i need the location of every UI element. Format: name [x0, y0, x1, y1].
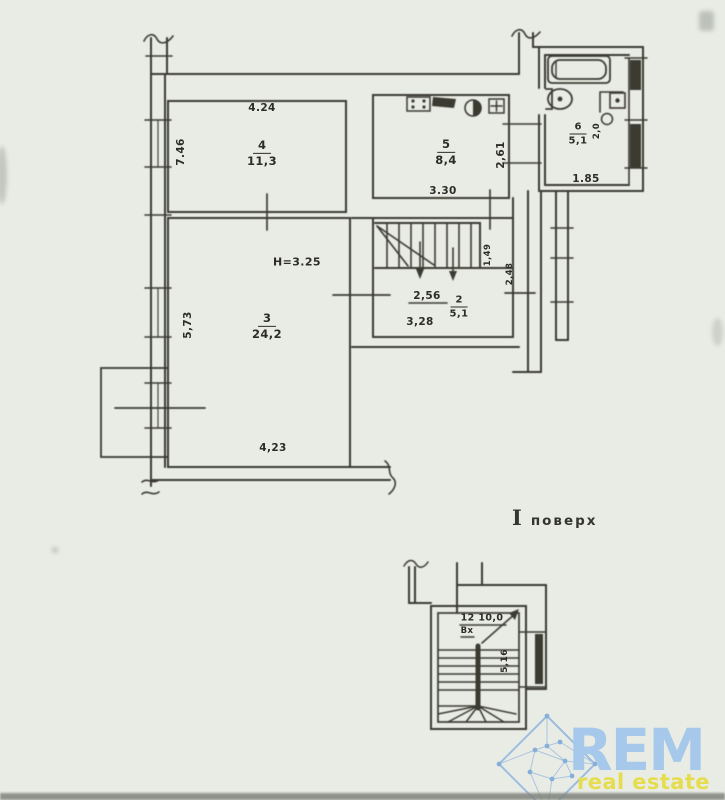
stairwell-label: 12 10,0	[461, 613, 504, 624]
toilet-icon	[610, 93, 625, 108]
water-heater-icon	[602, 114, 613, 125]
dim-stair-right: 1,49	[483, 244, 493, 267]
dim-hall-right: 2,48	[505, 263, 515, 286]
kitchen-sink-icon	[432, 97, 456, 108]
room3-number: 3	[258, 312, 276, 327]
room4-area: 11,3	[247, 154, 277, 168]
dim-room6-fixture: 2,0	[592, 123, 602, 139]
dim-room3-left: 5,73	[182, 311, 194, 339]
floor-plan-drawing	[0, 0, 725, 800]
meter-box-icon	[489, 99, 504, 113]
room6-number: 6	[570, 122, 587, 135]
note-room3-height: H=3.25	[273, 256, 321, 269]
scan-artifact	[699, 11, 714, 31]
room5-walls	[373, 95, 541, 229]
bathtub-icon	[548, 56, 610, 83]
room-label-6: 6 5,1	[569, 122, 588, 147]
dim-room2-bottom: 3,28	[406, 316, 434, 328]
room6-area: 5,1	[569, 135, 588, 147]
boiler-icon	[465, 100, 481, 116]
dim-room5-bottom: 3.30	[429, 185, 457, 197]
room-label-5: 5 8,4	[435, 138, 457, 166]
stairwell-plan	[404, 560, 546, 729]
room3-area: 24,2	[252, 327, 282, 341]
right-corridor-walls	[513, 191, 573, 372]
scan-edge-shadow	[0, 793, 725, 800]
scanned-floor-plan-page: 4.24 7.46 4 11,3 5 8,4 3.30 2,61 6 5,1 1…	[0, 0, 725, 800]
floor-caption: І поверх	[512, 505, 598, 530]
dim-room5-right: 2,61	[495, 141, 507, 169]
stairwell-entry-label: Вх	[461, 626, 474, 636]
floor-caption-text: поверх	[531, 513, 598, 529]
scan-artifact	[52, 547, 58, 553]
dim-room4-top: 4.24	[248, 102, 276, 114]
room4-number: 4	[253, 139, 271, 154]
dim-room2-top: 2,56	[413, 290, 441, 302]
room-label-2: 2 5,1	[450, 295, 469, 320]
floor-caption-numeral: І	[512, 505, 522, 530]
bathroom-walls	[533, 47, 647, 191]
scan-artifact	[712, 318, 723, 346]
room2-number: 2	[451, 295, 468, 308]
dim-stairwell-right: 5,16	[500, 649, 510, 673]
room-label-4: 4 11,3	[247, 139, 277, 167]
dim-room4-left: 7.46	[175, 138, 187, 166]
stove-icon	[407, 97, 430, 111]
room2-area: 5,1	[450, 308, 469, 320]
dim-room3-bottom: 4,23	[259, 442, 287, 454]
room5-area: 8,4	[435, 153, 457, 167]
dim-room6-bottom: 1.85	[572, 173, 600, 185]
room5-number: 5	[437, 138, 455, 153]
sink-icon	[546, 89, 572, 109]
room-label-3: 3 24,2	[252, 312, 282, 340]
